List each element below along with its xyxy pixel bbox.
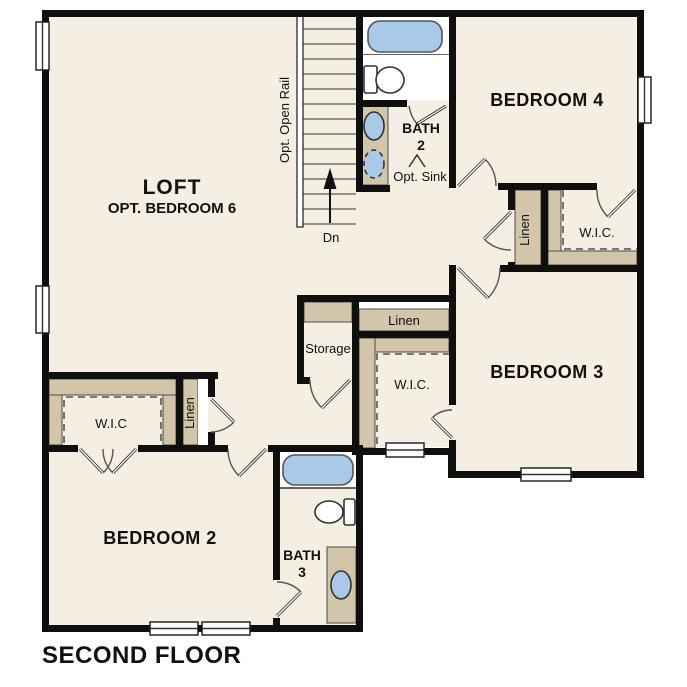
bath2-toilet-tank — [364, 66, 377, 93]
linen-bedroom2-label: Linen — [182, 397, 197, 429]
linen-lower-hall-label: Linen — [388, 313, 420, 328]
stairs-down-label: Dn — [323, 230, 340, 245]
wic-bedroom2-label: W.I.C — [95, 416, 127, 431]
storage-label: Storage — [305, 341, 351, 356]
wall — [297, 295, 304, 384]
bath3-sink-icon — [331, 571, 351, 599]
floor-plan-drawing: LOFT OPT. BEDROOM 6 BEDROOM 4 BEDROOM 3 … — [0, 0, 687, 687]
wall — [449, 440, 456, 471]
wall — [42, 445, 78, 452]
wall — [508, 183, 515, 210]
loft-label: LOFT — [143, 176, 202, 199]
wic-bedroom2-shelf-right — [163, 395, 176, 445]
wic-bedroom4-shelf-bottom — [548, 251, 637, 265]
bath2-label-line1: BATH — [402, 120, 440, 136]
wall — [352, 295, 359, 455]
bath3-label-line1: BATH — [283, 547, 321, 563]
bath3-bathtub-icon — [283, 455, 353, 485]
wall — [541, 190, 548, 272]
wall — [273, 452, 280, 580]
storage-shelf — [304, 302, 352, 322]
wic-bedroom2-shelf-top — [49, 379, 176, 395]
linen-floor-strip — [359, 302, 449, 309]
wall — [449, 265, 456, 405]
open-rail — [297, 14, 303, 227]
wall — [208, 432, 215, 445]
wall — [208, 379, 215, 397]
open-rail-label: Opt. Open Rail — [277, 77, 292, 163]
bath3-label-line2: 3 — [298, 564, 306, 580]
wall — [356, 185, 390, 192]
bedroom3-label: BEDROOM 3 — [490, 362, 604, 382]
bath2-optional-sink-icon — [364, 150, 384, 178]
bath2-sink-icon — [364, 112, 384, 140]
bath2-label-line2: 2 — [417, 137, 425, 153]
page-title: SECOND FLOOR — [42, 642, 241, 669]
linen-upper-hall-label: Linen — [517, 214, 532, 246]
loft-sublabel: OPT. BEDROOM 6 — [108, 200, 236, 217]
bath2-toilet-icon — [376, 67, 404, 93]
opt-sink-label: Opt. Sink — [393, 169, 447, 184]
wall — [42, 372, 218, 379]
wall — [449, 10, 456, 188]
wic-bedroom3-shelf-left — [359, 338, 375, 448]
bath3-toilet-tank — [344, 499, 355, 525]
wall — [500, 265, 644, 272]
wall — [273, 618, 280, 632]
floor-plan-page: LOFT OPT. BEDROOM 6 BEDROOM 4 BEDROOM 3 … — [0, 0, 687, 687]
wic-bedroom4-label: W.I.C. — [579, 225, 614, 240]
wall — [42, 10, 644, 17]
wall — [359, 331, 449, 338]
wall — [356, 100, 407, 107]
bedroom4-label: BEDROOM 4 — [490, 90, 604, 110]
bath2-bathtub-icon — [368, 21, 442, 52]
wic-bedroom2-shelf-left — [49, 395, 62, 445]
bath3-toilet-icon — [315, 501, 343, 523]
linen-bedroom2-floor — [198, 379, 208, 445]
wall — [138, 445, 228, 452]
wall — [297, 377, 310, 384]
wic-bedroom3-label: W.I.C. — [394, 377, 429, 392]
wall — [356, 447, 363, 632]
bedroom2-label: BEDROOM 2 — [103, 528, 217, 548]
wall — [268, 445, 363, 452]
wall — [352, 295, 455, 302]
